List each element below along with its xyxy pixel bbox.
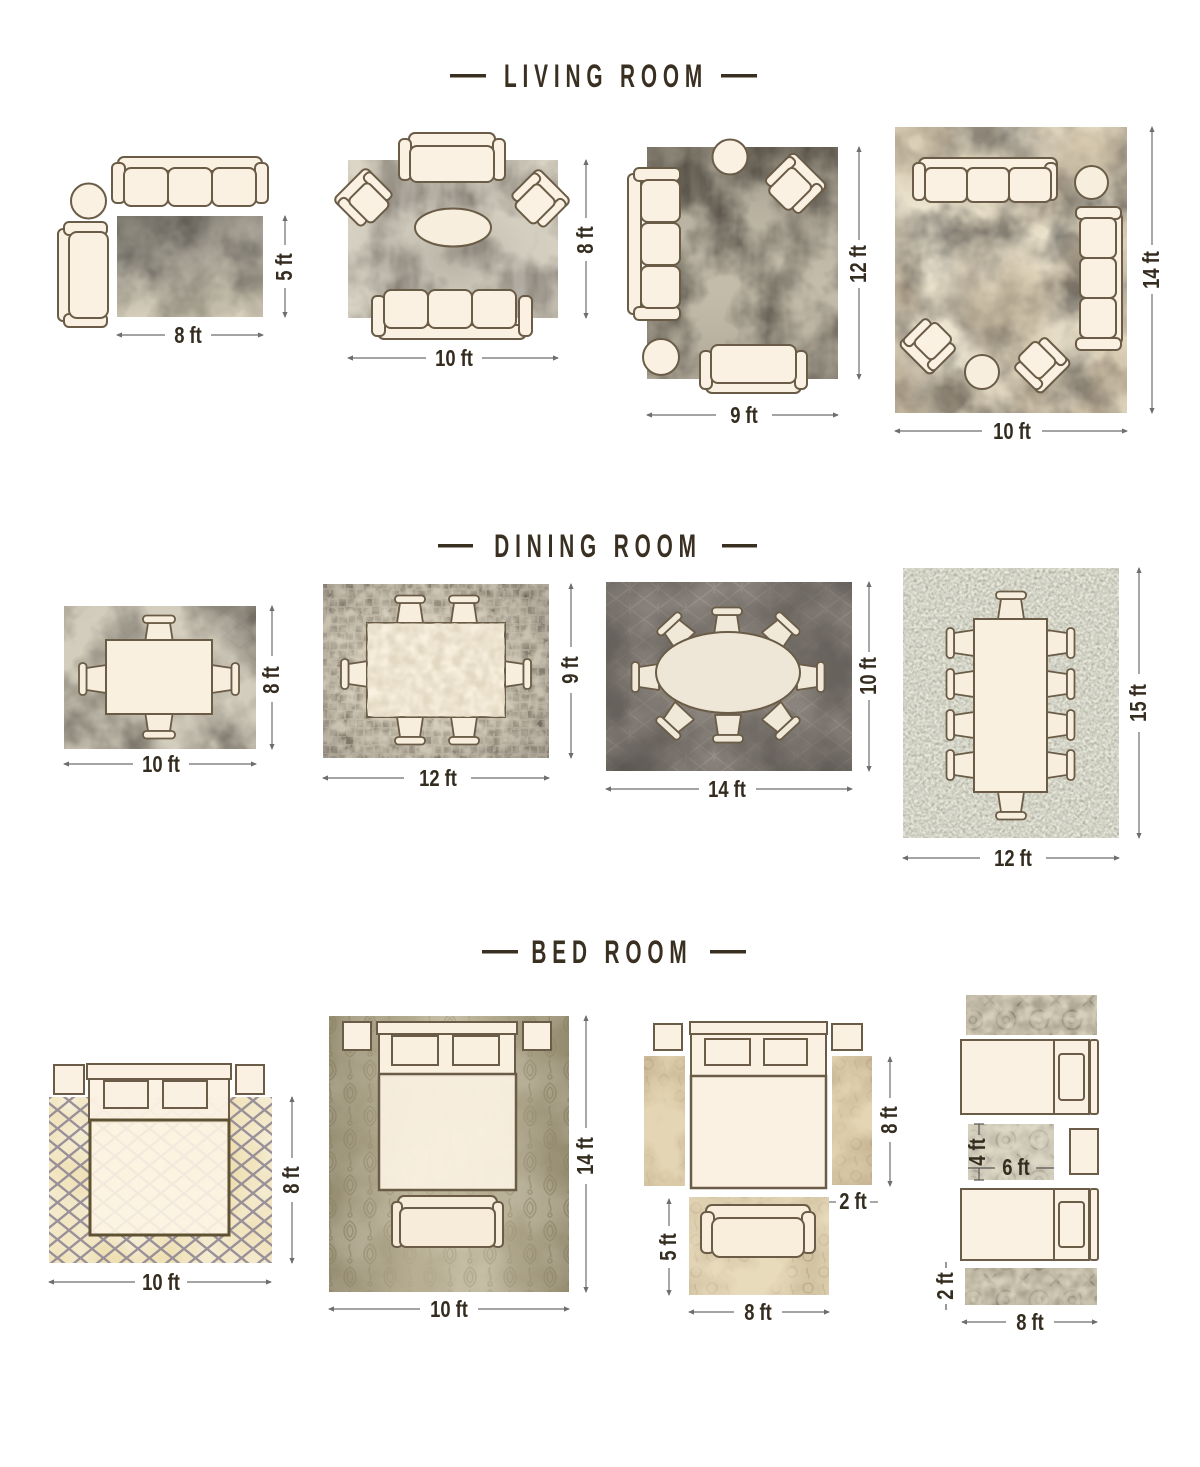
svg-text:10 ft: 10 ft: [856, 657, 881, 695]
svg-text:2 ft: 2 ft: [839, 1189, 867, 1214]
svg-text:8 ft: 8 ft: [573, 226, 598, 254]
svg-text:5 ft: 5 ft: [656, 1233, 681, 1261]
svg-text:8 ft: 8 ft: [174, 323, 202, 348]
svg-text:8 ft: 8 ft: [279, 1166, 304, 1194]
svg-text:5 ft: 5 ft: [272, 253, 297, 281]
svg-text:12 ft: 12 ft: [994, 846, 1032, 871]
svg-text:10 ft: 10 ft: [430, 1297, 468, 1322]
svg-text:12 ft: 12 ft: [419, 766, 457, 791]
svg-text:6 ft: 6 ft: [1002, 1155, 1030, 1180]
svg-text:8 ft: 8 ft: [744, 1300, 772, 1325]
svg-text:14 ft: 14 ft: [573, 1137, 598, 1175]
svg-text:9 ft: 9 ft: [558, 656, 583, 684]
svg-text:14 ft: 14 ft: [708, 777, 746, 802]
svg-text:8 ft: 8 ft: [877, 1106, 902, 1134]
svg-text:9 ft: 9 ft: [730, 403, 758, 428]
svg-text:DINING ROOM: DINING ROOM: [494, 529, 702, 565]
svg-text:14 ft: 14 ft: [1139, 251, 1164, 289]
svg-text:LIVING ROOM: LIVING ROOM: [504, 59, 708, 95]
svg-text:15 ft: 15 ft: [1126, 684, 1151, 722]
svg-text:BED ROOM: BED ROOM: [531, 935, 692, 971]
svg-text:8 ft: 8 ft: [1016, 1310, 1044, 1335]
svg-text:8 ft: 8 ft: [259, 666, 284, 694]
svg-text:4 ft: 4 ft: [965, 1138, 990, 1166]
svg-text:10 ft: 10 ft: [142, 1270, 180, 1295]
svg-text:10 ft: 10 ft: [142, 752, 180, 777]
svg-text:2 ft: 2 ft: [933, 1272, 958, 1300]
svg-text:12 ft: 12 ft: [846, 245, 871, 283]
svg-text:10 ft: 10 ft: [435, 346, 473, 371]
svg-text:10 ft: 10 ft: [993, 419, 1031, 444]
